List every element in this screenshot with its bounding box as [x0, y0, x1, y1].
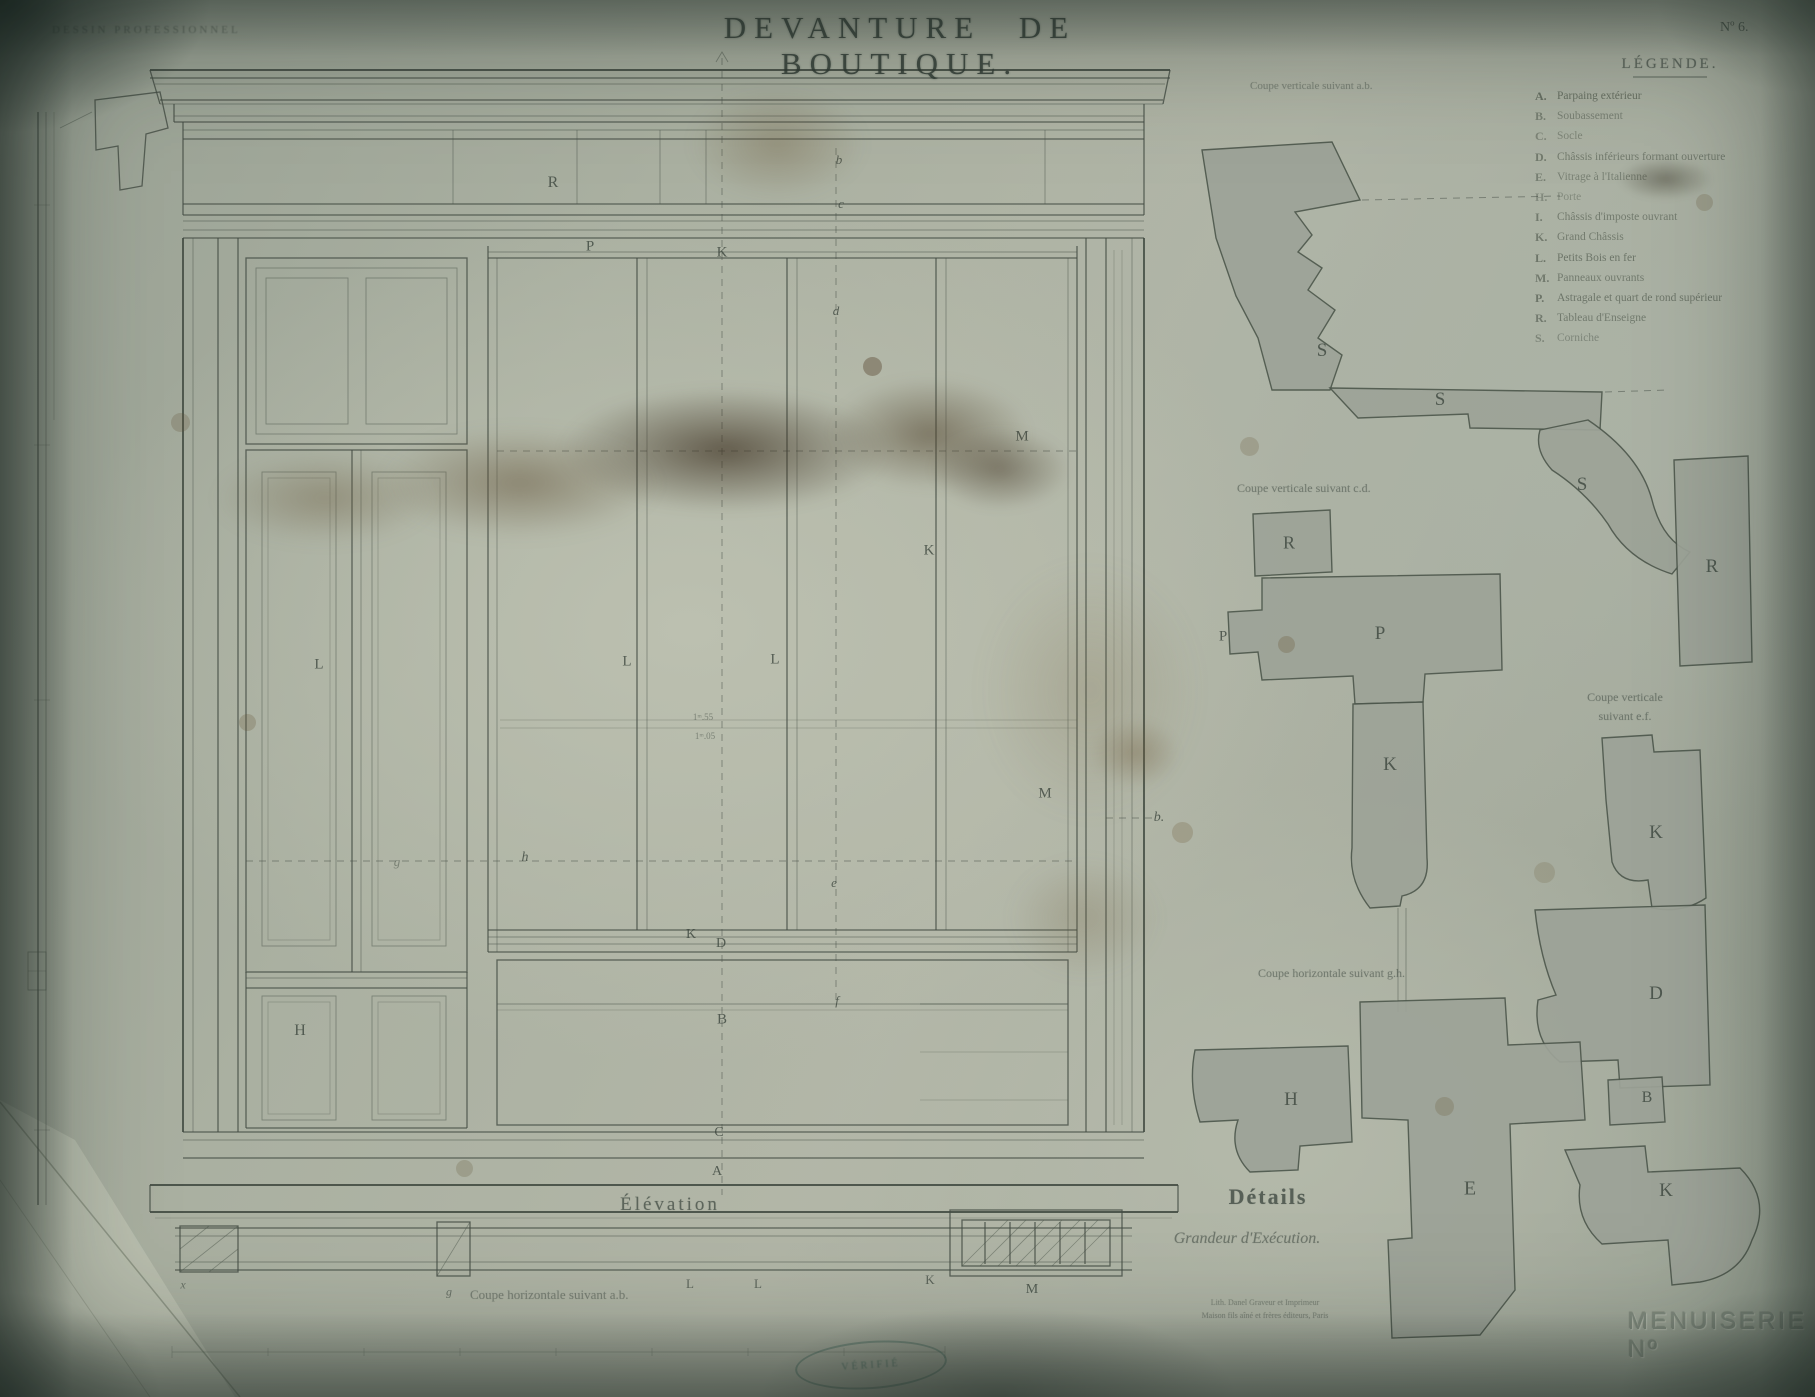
caption-elevation: Élévation	[575, 1194, 765, 1216]
legend-item: M.Panneaux ouvrants	[1535, 268, 1807, 288]
legend-item-label: Corniche	[1557, 328, 1599, 348]
legend-item-label: Petits Bois en fer	[1557, 248, 1636, 268]
caption-coupe-cd: Coupe verticale suivant c.d.	[1237, 481, 1371, 496]
page-title: DEVANTURE DE BOUTIQUE.	[640, 10, 1160, 82]
detail-h1	[1192, 1046, 1352, 1172]
caption-coupe-gh: Coupe horizontale suivant g.h.	[1258, 966, 1405, 981]
legend-item-key: S.	[1535, 328, 1557, 348]
legend-item: L.Petits Bois en fer	[1535, 248, 1807, 268]
legend-item: H.Porte	[1535, 187, 1807, 207]
left-margin-section	[28, 92, 168, 1205]
legend-item-key: B.	[1535, 106, 1557, 126]
legend-item-key: K.	[1535, 227, 1557, 247]
legend-item: C.Socle	[1535, 126, 1807, 146]
legend-item-label: Châssis d'imposte ouvrant	[1557, 207, 1677, 227]
horizontal-section-strip	[175, 1210, 1132, 1276]
imprint-line1: Lith. Danel Graveur et Imprimeur	[1160, 1296, 1370, 1309]
caption-coupe-ef: Coupe verticale suivant e.f.	[1545, 688, 1705, 726]
legend-item-key: R.	[1535, 308, 1557, 328]
detail-k3	[1565, 1146, 1760, 1285]
legend-item-label: Grand Châssis	[1557, 227, 1624, 247]
legend-item: B.Soubassement	[1535, 106, 1807, 126]
series-title: DESSIN PROFESSIONNEL	[52, 24, 241, 36]
legend-item: R.Tableau d'Enseigne	[1535, 308, 1807, 328]
caption-coupe-ef-line1: Coupe verticale	[1545, 688, 1705, 707]
legend-rule	[1633, 76, 1707, 78]
legend-item-label: Socle	[1557, 126, 1583, 146]
legend-item-label: Tableau d'Enseigne	[1557, 308, 1646, 328]
caption-coupe-ef-line2: suivant e.f.	[1545, 707, 1705, 726]
legend-item: A.Parpaing extérieur	[1535, 86, 1807, 106]
legend-item-label: Parpaing extérieur	[1557, 86, 1642, 106]
stamp-text: VÉRIFIÉ	[841, 1357, 901, 1372]
detail-r2	[1253, 510, 1332, 576]
legend-items: A.Parpaing extérieurB.SoubassementC.Socl…	[1535, 86, 1807, 349]
legend-item-key: M.	[1535, 268, 1557, 288]
detail-p-block	[1228, 574, 1502, 704]
legend-item-key: A.	[1535, 86, 1557, 106]
legend-item: D.Châssis inférieurs formant ouverture	[1535, 147, 1807, 167]
detail-k1	[1351, 702, 1427, 908]
menuiserie-blindstamp: MENUISERIE Nº	[1628, 1308, 1815, 1364]
legend-item-label: Astragale et quart de rond supérieur	[1557, 288, 1722, 308]
imprint-line2: Maison fils aîné et frères éditeurs, Par…	[1160, 1309, 1370, 1322]
legend-item: K.Grand Châssis	[1535, 227, 1807, 247]
caption-coupe-ab-bottom: Coupe horizontale suivant a.b.	[470, 1287, 629, 1303]
legend-item-key: E.	[1535, 167, 1557, 187]
legend-item-key: H.	[1535, 187, 1557, 207]
legend-item-label: Porte	[1557, 187, 1581, 207]
legend-item-label: Châssis inférieurs formant ouverture	[1557, 147, 1725, 167]
imprint: Lith. Danel Graveur et Imprimeur Maison …	[1160, 1296, 1370, 1322]
legend-item-key: C.	[1535, 126, 1557, 146]
legend-item: I.Châssis d'imposte ouvrant	[1535, 207, 1807, 227]
sign-section-r1	[1674, 456, 1752, 666]
legend: LÉGENDE. A.Parpaing extérieurB.Soubassem…	[1535, 56, 1807, 349]
detail-b1	[1608, 1077, 1665, 1125]
legend-title: LÉGENDE.	[1565, 56, 1775, 73]
scanned-plate: RbcPKdMKLLLMb.gheKDfBHCA1ᵐ.551ᵐ.05xgLLKM…	[0, 0, 1815, 1397]
legend-item-key: I.	[1535, 207, 1557, 227]
elevation-linework	[150, 52, 1178, 1218]
legend-item-key: P.	[1535, 288, 1557, 308]
detail-k2	[1602, 735, 1706, 910]
plate-number: Nº 6.	[1720, 20, 1748, 36]
legend-item-label: Vitrage à l'Italienne	[1557, 167, 1647, 187]
legend-item-label: Soubassement	[1557, 106, 1623, 126]
legend-item: E.Vitrage à l'Italienne	[1535, 167, 1807, 187]
caption-details: Détails	[1193, 1184, 1343, 1210]
legend-item: P.Astragale et quart de rond supérieur	[1535, 288, 1807, 308]
legend-item: S.Corniche	[1535, 328, 1807, 348]
legend-item-key: L.	[1535, 248, 1557, 268]
cornice-board-s2	[1330, 388, 1602, 430]
legend-item-key: D.	[1535, 147, 1557, 167]
caption-grandeur: Grandeur d'Exécution.	[1147, 1230, 1347, 1248]
cornice-profile-s1	[1202, 142, 1360, 390]
detail-e1	[1360, 998, 1585, 1338]
caption-coupe-ab: Coupe verticale suivant a.b.	[1250, 80, 1373, 92]
cornice-ogee-s3	[1539, 420, 1691, 574]
legend-item-label: Panneaux ouvrants	[1557, 268, 1644, 288]
